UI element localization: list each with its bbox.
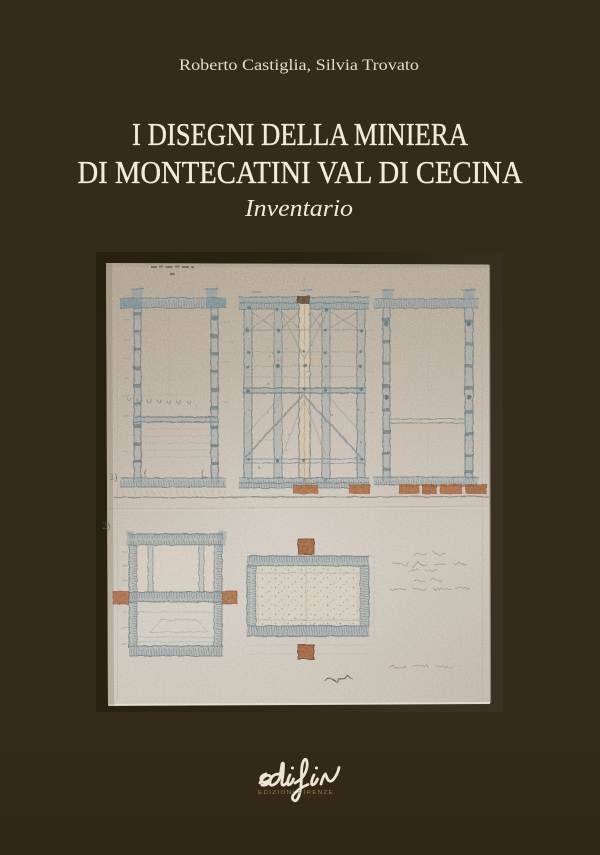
svg-text:I DISEGNI DELLA MINIERA: I DISEGNI DELLA MINIERA: [132, 117, 468, 152]
svg-text:DI MONTECATINI VAL DI CECINA: DI MONTECATINI VAL DI CECINA: [78, 155, 523, 190]
svg-text:Roberto Castiglia, Silvia Trov: Roberto Castiglia, Silvia Trovato: [179, 57, 419, 74]
svg-text:EDIZIONI FIRENZE: EDIZIONI FIRENZE: [258, 790, 334, 796]
svg-text:Inventario: Inventario: [244, 196, 353, 222]
